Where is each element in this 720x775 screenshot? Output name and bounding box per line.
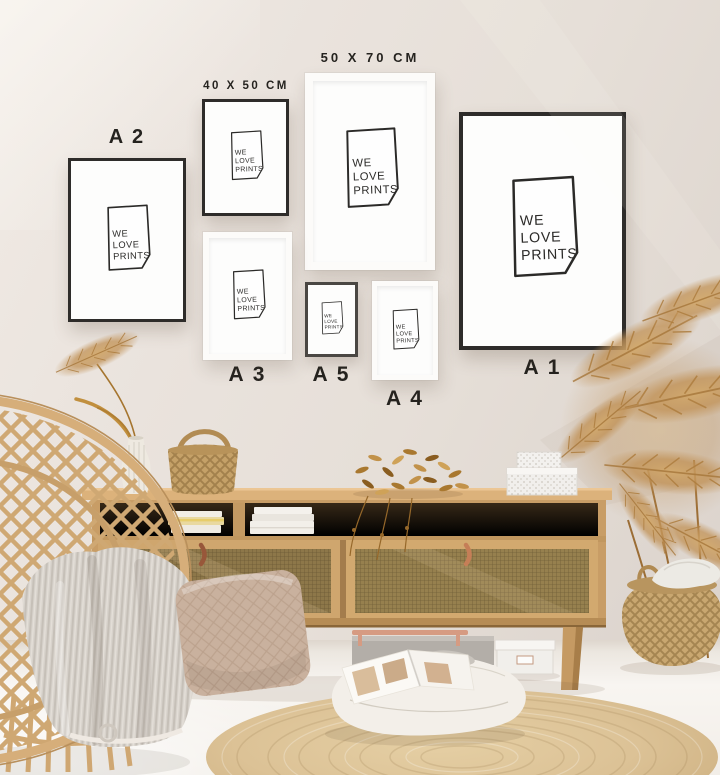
we-love-prints-print: WE LOVE PRINTS xyxy=(98,200,156,281)
frame-a2: WE LOVE PRINTS xyxy=(68,158,186,322)
print-line-love: LOVE xyxy=(324,319,338,324)
print-line-we: WE xyxy=(352,158,372,171)
print-line-we: WE xyxy=(396,324,406,330)
print-line-prints: PRINTS xyxy=(521,246,578,264)
print-line-prints: PRINTS xyxy=(113,250,150,261)
we-love-prints-print: WE LOVE PRINTS xyxy=(226,266,270,327)
print-line-prints: PRINTS xyxy=(324,324,343,330)
we-love-prints-print: WE LOVE PRINTS xyxy=(387,306,423,356)
print-line-we: WE xyxy=(236,288,248,295)
frame-a5: WE LOVE PRINTS xyxy=(305,282,358,357)
books-stack-left xyxy=(168,511,224,533)
basket-handles xyxy=(639,565,711,585)
cane-door-right xyxy=(346,540,598,622)
size-label-a5: A 5 xyxy=(305,364,358,385)
dried-leaf-blade xyxy=(76,399,130,437)
print-line-love: LOVE xyxy=(237,296,257,304)
print-line-prints: PRINTS xyxy=(396,337,419,344)
print-line-love: LOVE xyxy=(235,158,255,166)
we-love-prints-print: WE LOVE PRINTS xyxy=(335,122,406,220)
white-cloth xyxy=(652,558,720,588)
door-handle-left xyxy=(201,545,205,564)
frame-50x70: WE LOVE PRINTS xyxy=(305,73,435,270)
print-line-love: LOVE xyxy=(396,331,413,338)
print-line-prints: PRINTS xyxy=(235,166,263,174)
we-love-prints-print: WE LOVE PRINTS xyxy=(224,127,268,188)
sideboard-top xyxy=(82,488,612,500)
size-label-40x50: 40 X 50 CM xyxy=(196,81,296,93)
door-handle-right xyxy=(466,545,470,564)
cane-door-left xyxy=(98,540,340,622)
print-line-we: WE xyxy=(520,213,545,230)
print-line-we: WE xyxy=(324,313,332,318)
room-scene: A 2 40 X 50 CM 50 X 70 CM A 1 A 3 A 5 A … xyxy=(0,0,720,775)
size-label-50x70: 50 X 70 CM xyxy=(300,51,440,64)
frame-a1: WE LOVE PRINTS xyxy=(459,112,626,350)
we-love-prints-print: WE LOVE PRINTS xyxy=(498,169,587,293)
print-line-prints: PRINTS xyxy=(353,184,398,198)
dried-plant xyxy=(350,448,469,560)
print-line-we: WE xyxy=(234,149,246,156)
frame-40x50: WE LOVE PRINTS xyxy=(202,99,289,216)
floor-reflection xyxy=(0,660,330,775)
storage-boxes xyxy=(507,452,577,495)
frame-a3: WE LOVE PRINTS xyxy=(203,232,292,360)
print-line-we: WE xyxy=(112,228,128,239)
size-label-a4: A 4 xyxy=(372,388,438,409)
vase xyxy=(49,322,151,494)
print-line-love: LOVE xyxy=(520,229,561,246)
we-love-prints-print: WE LOVE PRINTS xyxy=(317,299,346,339)
size-label-a1: A 1 xyxy=(459,357,626,378)
open-shelf xyxy=(100,503,598,536)
size-label-a2: A 2 xyxy=(68,127,186,147)
frame-a4: WE LOVE PRINTS xyxy=(372,281,438,380)
copper-rail xyxy=(352,630,468,635)
books-stack-right xyxy=(250,507,314,534)
print-line-love: LOVE xyxy=(112,239,139,250)
handled-basket xyxy=(168,432,238,495)
print-line-prints: PRINTS xyxy=(237,304,265,312)
print-line-love: LOVE xyxy=(352,171,385,184)
size-label-a3: A 3 xyxy=(203,364,292,385)
